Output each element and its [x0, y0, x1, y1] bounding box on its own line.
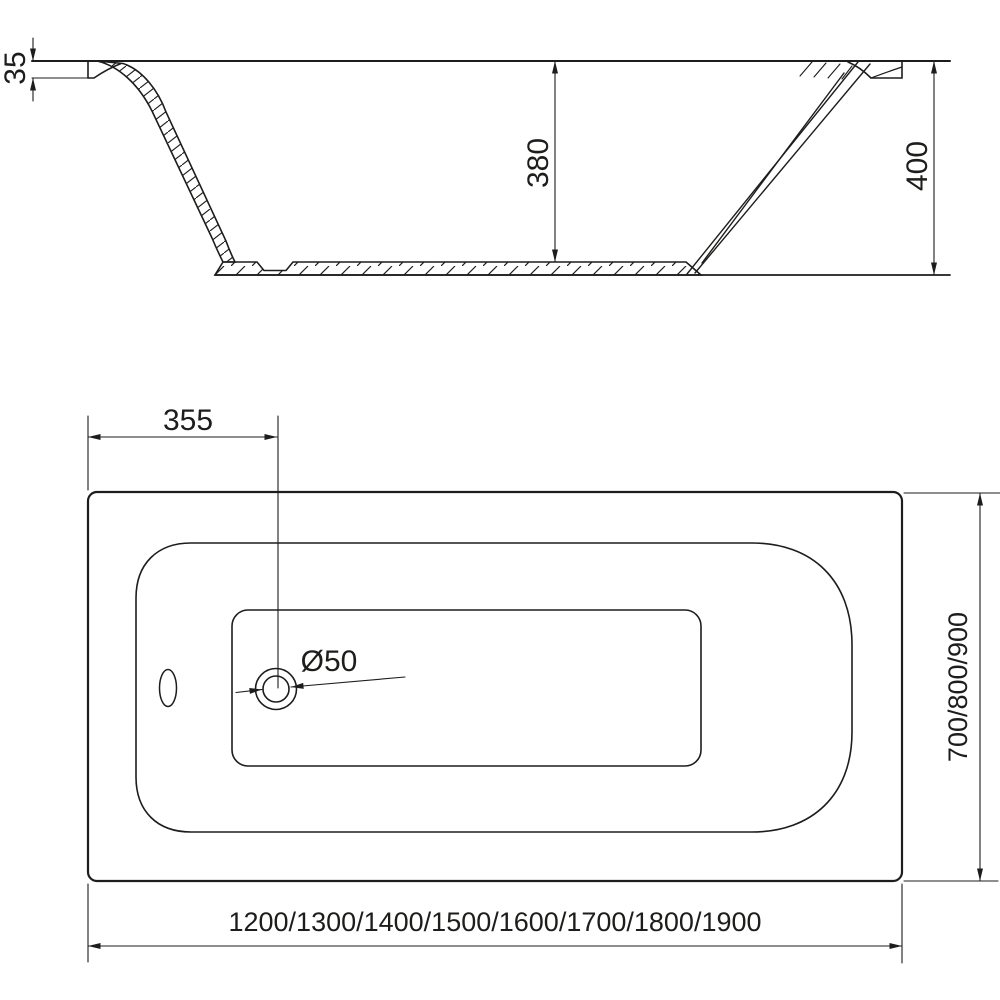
- dim-380-label: 380: [522, 138, 555, 188]
- technical-drawing-canvas: 35 380 400 355: [0, 0, 1000, 1000]
- background: [0, 0, 1000, 1000]
- dim-35-label: 35: [0, 51, 32, 84]
- dim-length-options-label: 1200/1300/1400/1500/1600/1700/1800/1900: [228, 907, 761, 937]
- dim-400-label: 400: [901, 141, 934, 191]
- dim-355-label: 355: [163, 404, 213, 437]
- bathtub-drawing-svg: 35 380 400 355: [0, 0, 1000, 1000]
- dim-drain-diameter-label: Ø50: [301, 645, 358, 678]
- dim-width-options-label: 700/800/900: [943, 612, 973, 762]
